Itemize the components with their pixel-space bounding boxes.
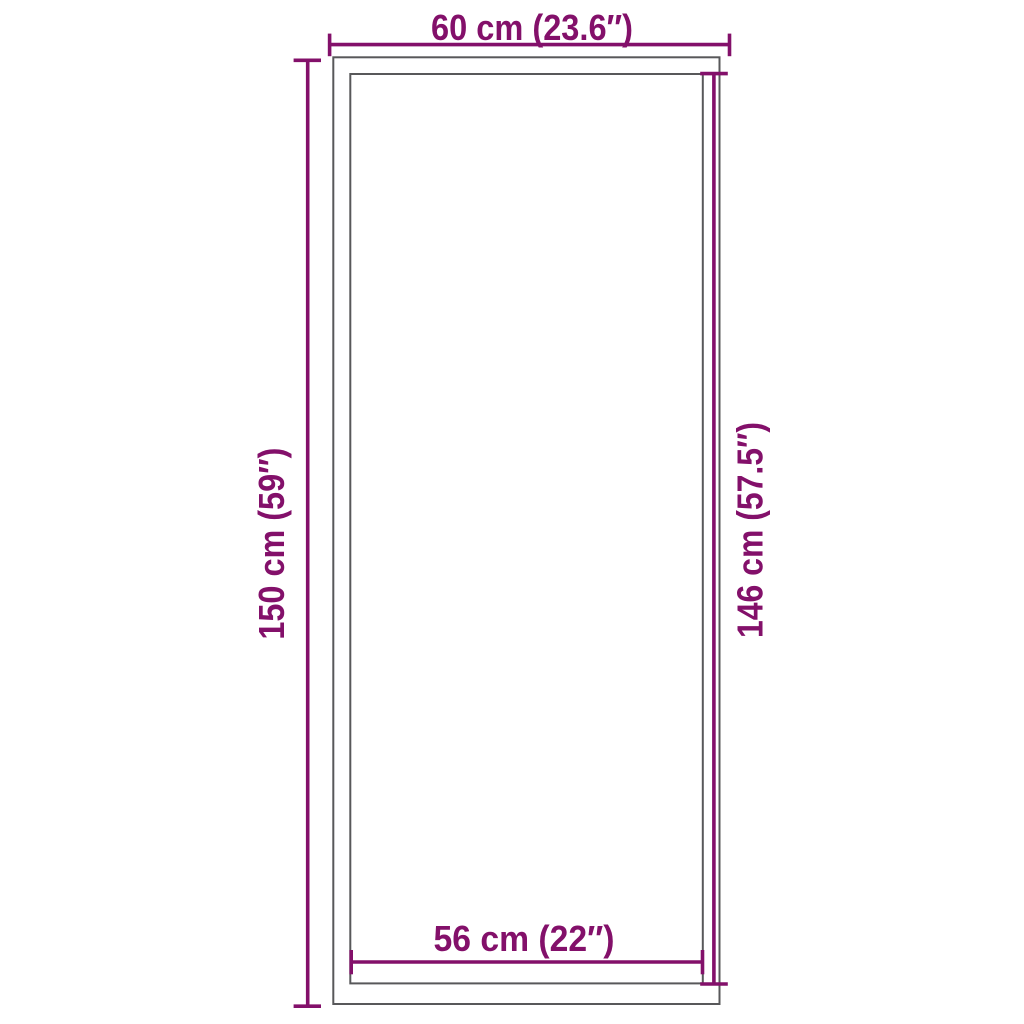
svg-text:56 cm (22″): 56 cm (22″) — [434, 918, 615, 959]
svg-text:60 cm (23.6″): 60 cm (23.6″) — [431, 7, 633, 48]
svg-text:150 cm (59″): 150 cm (59″) — [251, 448, 292, 640]
svg-text:146 cm (57.5″): 146 cm (57.5″) — [730, 422, 771, 638]
